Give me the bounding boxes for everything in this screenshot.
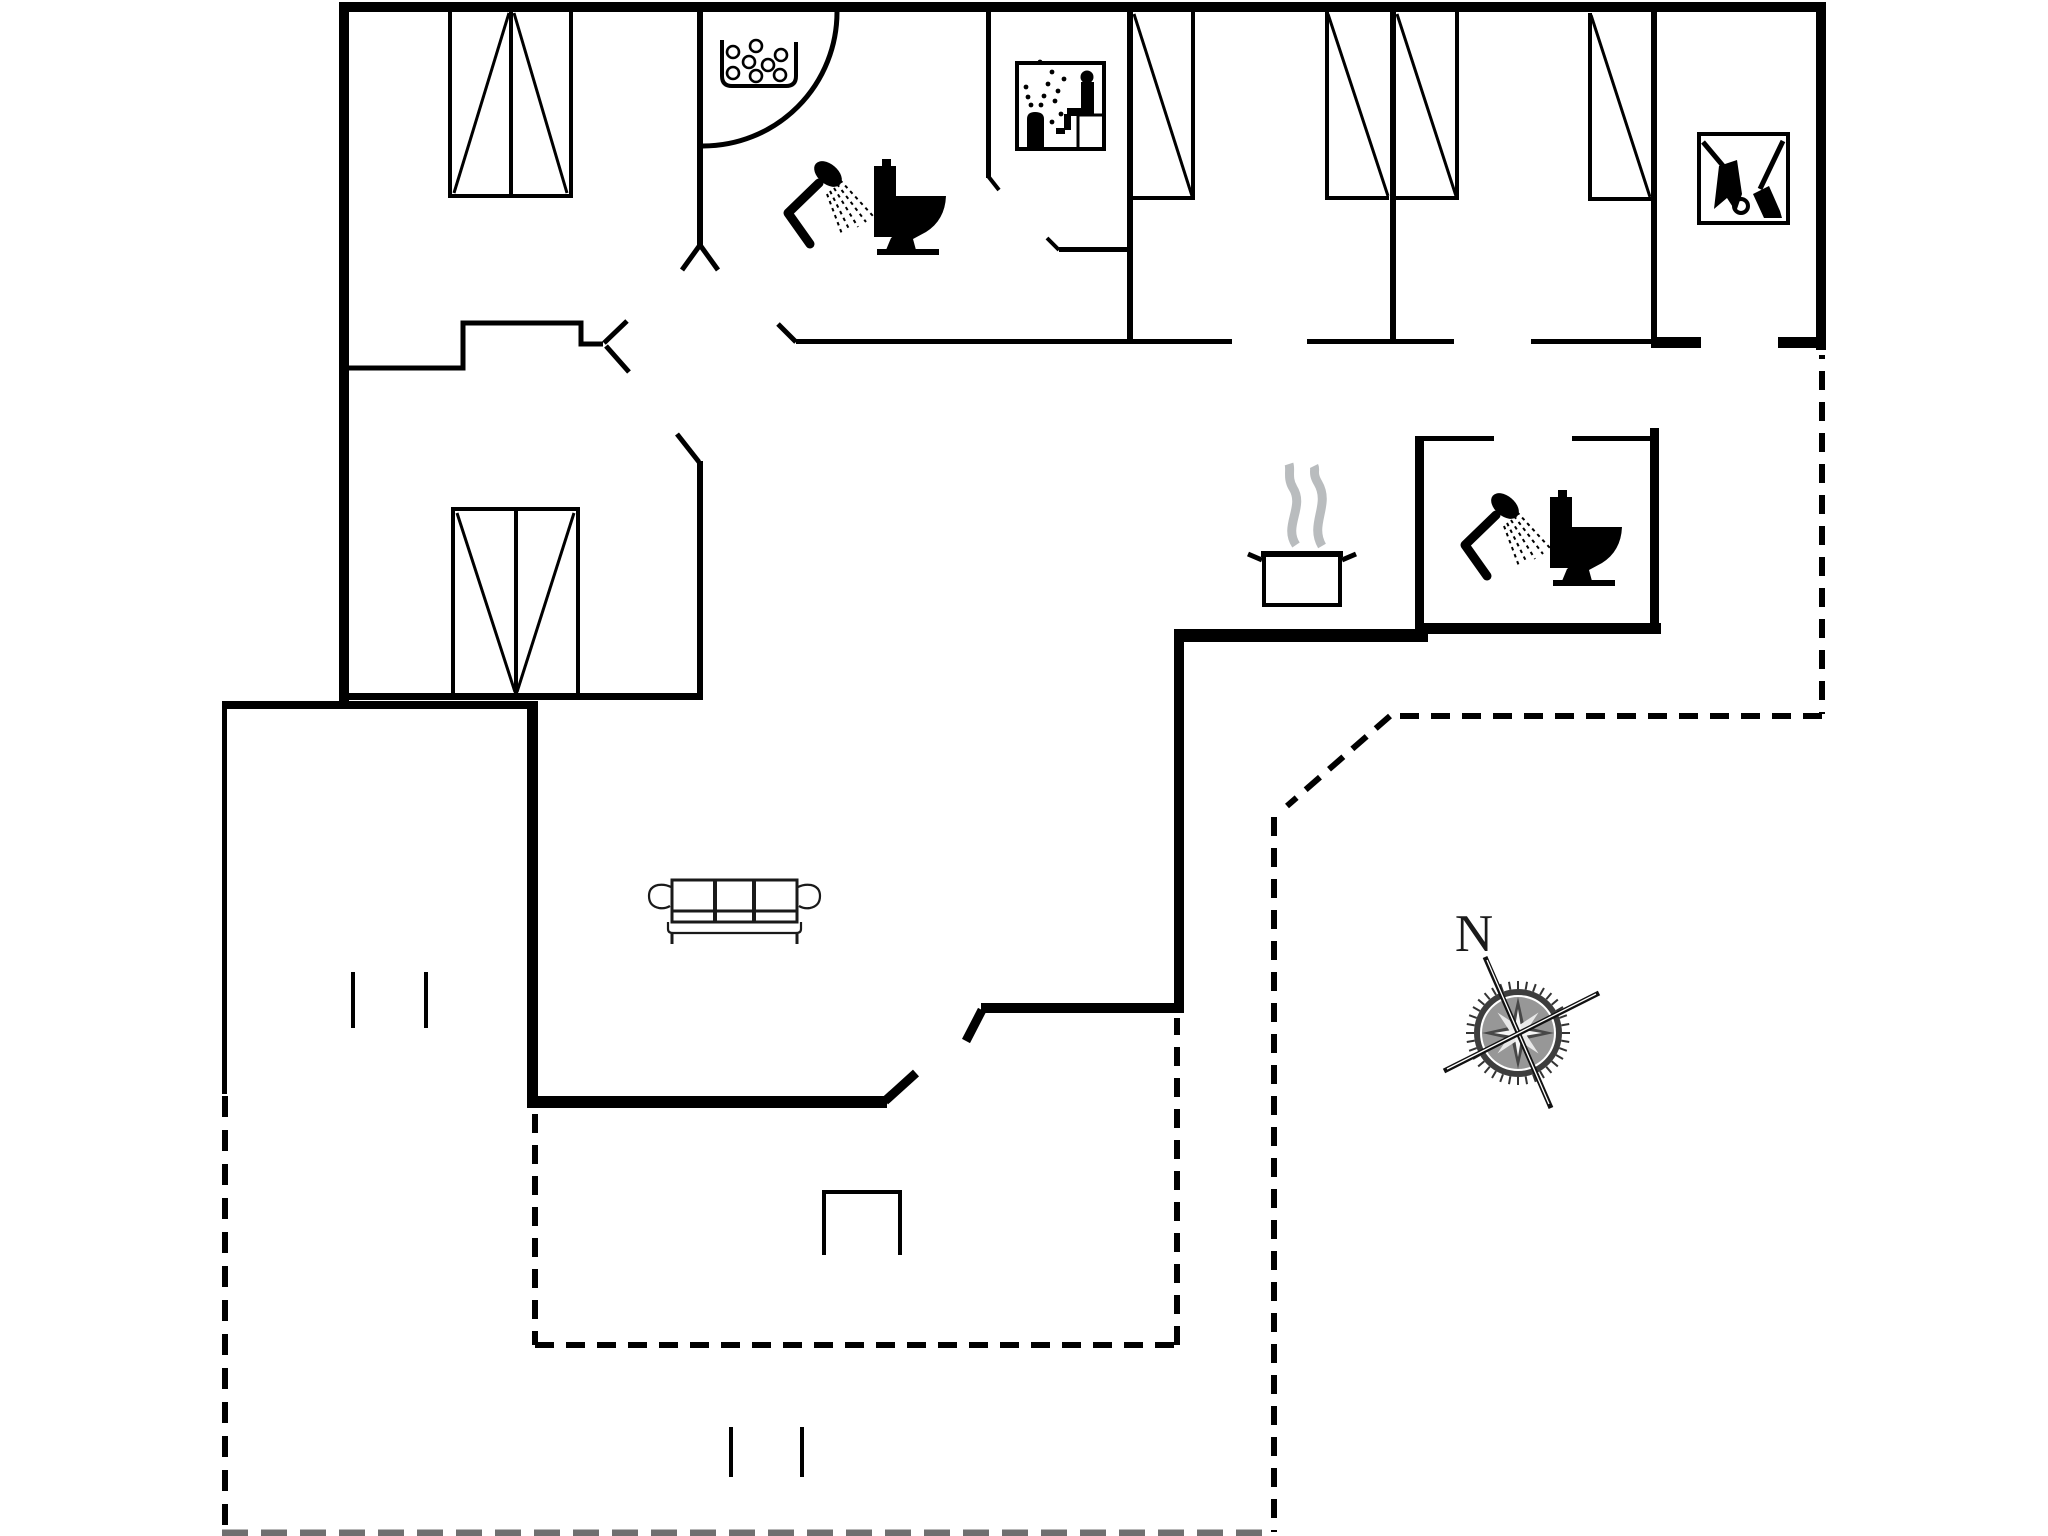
svg-text:N: N (1455, 905, 1493, 963)
